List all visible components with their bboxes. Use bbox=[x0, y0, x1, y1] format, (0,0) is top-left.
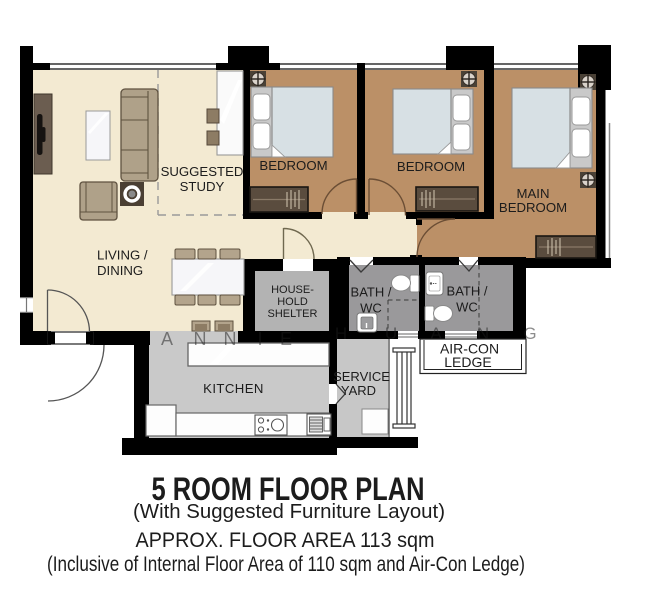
svg-text:LEDGE: LEDGE bbox=[444, 354, 491, 370]
svg-text:N: N bbox=[477, 324, 489, 343]
svg-text:BEDROOM: BEDROOM bbox=[397, 159, 465, 174]
svg-text:(With Suggested Furniture Layo: (With Suggested Furniture Layout) bbox=[133, 501, 445, 523]
svg-text:MAIN: MAIN bbox=[517, 186, 550, 201]
svg-text:G: G bbox=[523, 324, 536, 343]
svg-text:(Inclusive of Internal Floor A: (Inclusive of Internal Floor Area of 110… bbox=[47, 553, 525, 576]
svg-text:HOUSE-: HOUSE- bbox=[271, 284, 314, 296]
svg-text:STUDY: STUDY bbox=[180, 179, 225, 194]
svg-text:N: N bbox=[194, 329, 207, 349]
svg-text:WC: WC bbox=[456, 300, 478, 315]
svg-text:A: A bbox=[430, 324, 442, 343]
svg-text:KITCHEN: KITCHEN bbox=[203, 381, 264, 396]
svg-text:SERVICE: SERVICE bbox=[333, 369, 390, 384]
svg-text:APPROX. FLOOR AREA 113 sqm: APPROX. FLOOR AREA 113 sqm bbox=[136, 529, 435, 552]
svg-text:SUGGESTED: SUGGESTED bbox=[161, 164, 244, 179]
svg-text:U: U bbox=[385, 324, 397, 343]
svg-text:YARD: YARD bbox=[341, 383, 376, 398]
svg-text:H: H bbox=[335, 324, 347, 343]
svg-text:LIVING /: LIVING / bbox=[97, 248, 148, 263]
svg-text:E: E bbox=[280, 329, 292, 349]
svg-text:N: N bbox=[224, 329, 237, 349]
svg-text:HOLD: HOLD bbox=[277, 296, 308, 308]
svg-text:BATH /: BATH / bbox=[351, 285, 392, 300]
svg-text:BATH /: BATH / bbox=[447, 284, 488, 299]
svg-text:BEDROOM: BEDROOM bbox=[259, 158, 327, 173]
svg-text:I: I bbox=[257, 329, 262, 349]
svg-text:BEDROOM: BEDROOM bbox=[499, 200, 567, 215]
svg-text:SHELTER: SHELTER bbox=[268, 308, 318, 320]
svg-text:DINING: DINING bbox=[97, 263, 143, 278]
svg-text:A: A bbox=[161, 329, 173, 349]
svg-text:WC: WC bbox=[360, 301, 382, 316]
